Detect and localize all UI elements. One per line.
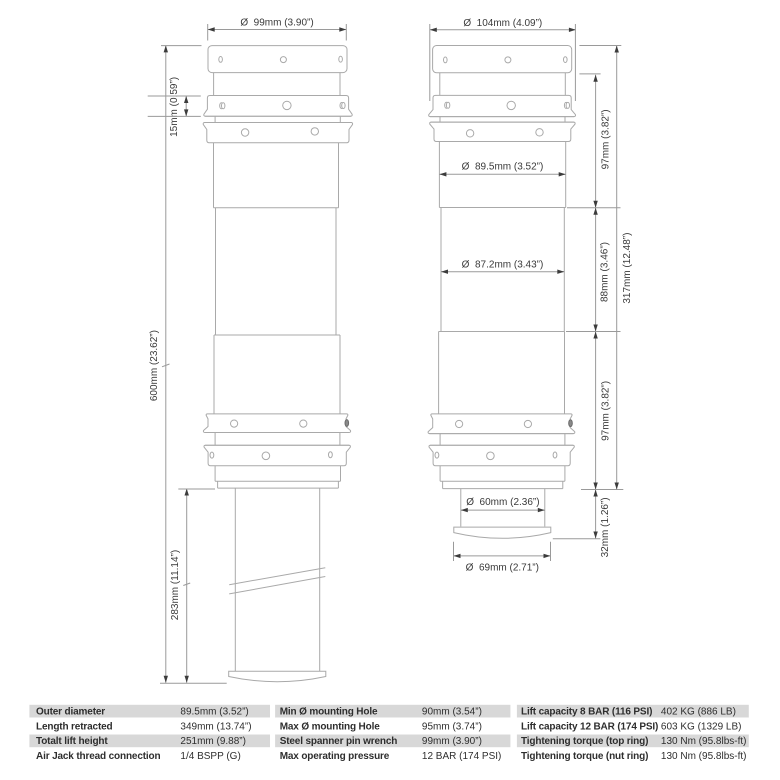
svg-text:603 KG (1329 LB): 603 KG (1329 LB)	[661, 721, 742, 732]
svg-text:130 Nm (95.8lbs-ft): 130 Nm (95.8lbs-ft)	[661, 736, 747, 747]
svg-text:89.5mm (3.52”): 89.5mm (3.52”)	[180, 706, 248, 717]
svg-text:Lift capacity 12 BAR (174 PSI): Lift capacity 12 BAR (174 PSI)	[521, 721, 658, 732]
svg-text:12 BAR (174 PSI): 12 BAR (174 PSI)	[422, 751, 501, 762]
svg-text:90mm (3.54”): 90mm (3.54”)	[422, 706, 482, 717]
svg-text:Totalt lift height: Totalt lift height	[36, 736, 108, 747]
svg-text:Tightening torque (top ring): Tightening torque (top ring)	[521, 736, 648, 747]
svg-text:Ø 60mm (2.36”): Ø 60mm (2.36”)	[466, 497, 539, 508]
svg-text:1/4 BSPP (G): 1/4 BSPP (G)	[180, 751, 240, 762]
svg-text:15mm (0.59”): 15mm (0.59”)	[169, 77, 180, 137]
svg-text:99mm (3.90”): 99mm (3.90”)	[422, 736, 482, 747]
svg-text:317mm (12.48”): 317mm (12.48”)	[622, 233, 633, 304]
svg-text:Tightening torque (nut ring): Tightening torque (nut ring)	[521, 751, 648, 762]
svg-text:Max Ø mounting Hole: Max Ø mounting Hole	[280, 721, 381, 732]
svg-text:Ø 99mm (3.90”): Ø 99mm (3.90”)	[240, 17, 313, 28]
svg-text:600mm (23.62”): 600mm (23.62”)	[149, 330, 160, 401]
svg-text:Min Ø mounting Hole: Min Ø mounting Hole	[280, 706, 378, 717]
svg-text:Air Jack thread connection: Air Jack thread connection	[36, 751, 161, 762]
svg-text:130 Nm (95.8lbs-ft): 130 Nm (95.8lbs-ft)	[661, 751, 747, 762]
svg-text:32mm (1.26”): 32mm (1.26”)	[600, 497, 611, 557]
svg-text:Ø 89.5mm (3.52”): Ø 89.5mm (3.52”)	[462, 161, 544, 172]
svg-text:95mm (3.74”): 95mm (3.74”)	[422, 721, 482, 732]
svg-text:Length retracted: Length retracted	[36, 721, 113, 732]
svg-text:349mm (13.74”): 349mm (13.74”)	[180, 721, 251, 732]
svg-text:Outer diameter: Outer diameter	[36, 706, 105, 717]
svg-text:Ø 104mm (4.09”): Ø 104mm (4.09”)	[463, 18, 542, 29]
svg-text:283mm (11.14”): 283mm (11.14”)	[170, 550, 181, 620]
svg-text:Ø 87.2mm (3.43”): Ø 87.2mm (3.43”)	[462, 259, 544, 270]
svg-text:Max operating pressure: Max operating pressure	[280, 751, 390, 762]
svg-text:97mm (3.82”): 97mm (3.82”)	[600, 381, 611, 441]
svg-text:97mm (3.82”): 97mm (3.82”)	[600, 109, 611, 169]
svg-text:88mm (3.46”): 88mm (3.46”)	[599, 242, 610, 302]
svg-text:Lift capacity 8 BAR (116 PSI): Lift capacity 8 BAR (116 PSI)	[521, 706, 652, 717]
svg-text:251mm (9.88”): 251mm (9.88”)	[180, 736, 246, 747]
svg-text:Steel spanner pin wrench: Steel spanner pin wrench	[280, 736, 398, 747]
svg-text:402 KG (886 LB): 402 KG (886 LB)	[661, 706, 736, 717]
svg-text:Ø 69mm (2.71”): Ø 69mm (2.71”)	[466, 563, 539, 574]
